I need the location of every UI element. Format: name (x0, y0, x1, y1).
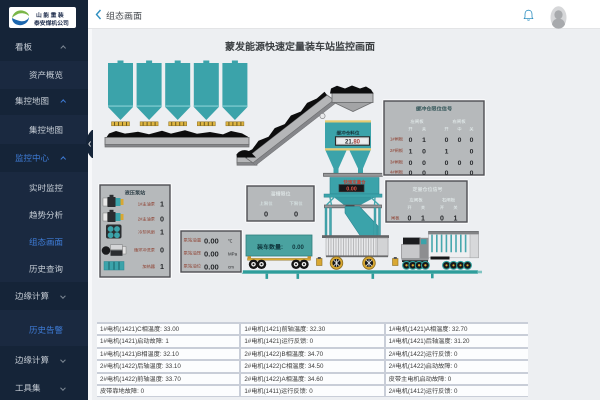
svg-text:0: 0 (294, 209, 298, 220)
svg-text:1: 1 (160, 228, 164, 238)
svg-text:开: 开 (440, 205, 444, 211)
svg-text:装车数量:: 装车数量: (256, 242, 283, 251)
svg-text:1: 1 (160, 200, 164, 210)
svg-text:1#主油泵: 1#主油泵 (138, 202, 155, 208)
svg-text:0: 0 (470, 134, 474, 144)
svg-text:0: 0 (409, 157, 413, 167)
svg-text:下限位: 下限位 (289, 201, 303, 207)
svg-text:0: 0 (458, 157, 462, 167)
svg-text:℃: ℃ (228, 239, 233, 245)
svg-text:1: 1 (454, 214, 458, 224)
svg-text:液压泵站: 液压泵站 (125, 190, 147, 197)
svg-text:0: 0 (470, 157, 474, 167)
svg-text:蒙发能源快速定量装车站监控画面: 蒙发能源快速定量装车站监控画面 (225, 38, 375, 53)
svg-text:1: 1 (421, 214, 425, 224)
svg-text:0: 0 (422, 146, 426, 156)
svg-text:缓冲仓限位信号: 缓冲仓限位信号 (416, 106, 452, 113)
svg-text:0: 0 (440, 214, 444, 224)
svg-text:2#主油泵: 2#主油泵 (138, 217, 155, 223)
svg-text:开: 开 (444, 127, 448, 133)
svg-text:3#闸板: 3#闸板 (390, 160, 404, 166)
svg-text:左闸板: 左闸板 (410, 119, 424, 125)
svg-text:0: 0 (458, 134, 462, 144)
svg-text:1: 1 (445, 146, 449, 156)
svg-text:1#闸板: 1#闸板 (390, 137, 404, 143)
svg-text:0: 0 (160, 246, 164, 256)
svg-text:21.80: 21.80 (345, 136, 361, 145)
svg-text:泵站油压: 泵站油压 (184, 251, 202, 257)
svg-text:0: 0 (422, 157, 426, 167)
svg-text:0: 0 (264, 209, 268, 220)
svg-text:1: 1 (409, 146, 413, 156)
svg-text:右闸板: 右闸板 (442, 198, 456, 204)
svg-text:1: 1 (160, 262, 164, 272)
svg-text:0: 0 (422, 167, 426, 177)
svg-text:0.00: 0.00 (204, 249, 219, 260)
svg-text:0: 0 (445, 157, 449, 167)
svg-text:0: 0 (470, 146, 474, 156)
svg-text:定量仓位信号: 定量仓位信号 (412, 186, 442, 193)
svg-text:关: 关 (421, 205, 425, 211)
svg-text:0: 0 (445, 167, 449, 177)
svg-text:关: 关 (453, 205, 457, 211)
svg-text:循环冲洗泵: 循环冲洗泵 (134, 248, 155, 254)
svg-text:溜槽限位: 溜槽限位 (270, 191, 290, 198)
svg-text:泵站油位: 泵站油位 (184, 264, 202, 270)
svg-text:0.00: 0.00 (346, 185, 357, 193)
svg-text:1: 1 (422, 134, 426, 144)
svg-text:0: 0 (445, 134, 449, 144)
svg-text:关: 关 (469, 127, 473, 133)
svg-text:MPa: MPa (228, 252, 238, 258)
svg-text:4#闸板: 4#闸板 (390, 170, 404, 176)
svg-text:0: 0 (160, 215, 164, 225)
svg-text:0: 0 (408, 214, 412, 224)
svg-text:中: 中 (457, 127, 461, 133)
svg-text:关: 关 (422, 127, 426, 133)
svg-text:闸板: 闸板 (391, 216, 400, 222)
svg-text:开: 开 (408, 127, 412, 133)
svg-text:0: 0 (409, 134, 413, 144)
svg-text:0.00: 0.00 (204, 236, 219, 247)
svg-text:0: 0 (470, 167, 474, 177)
svg-text:0.00: 0.00 (292, 242, 304, 251)
svg-text:2#闸板: 2#闸板 (390, 148, 404, 154)
svg-text:0.00: 0.00 (204, 262, 219, 273)
svg-text:加热器: 加热器 (142, 264, 155, 270)
svg-text:冷却风扇: 冷却风扇 (138, 230, 155, 236)
svg-text:开: 开 (407, 205, 411, 211)
svg-text:上限位: 上限位 (259, 201, 273, 207)
svg-text:泵站油温: 泵站油温 (184, 238, 202, 244)
svg-text:右闸板: 右闸板 (452, 119, 466, 125)
svg-text:cm: cm (228, 265, 234, 271)
svg-text:左闸板: 左闸板 (409, 198, 423, 204)
svg-text:0: 0 (409, 167, 413, 177)
